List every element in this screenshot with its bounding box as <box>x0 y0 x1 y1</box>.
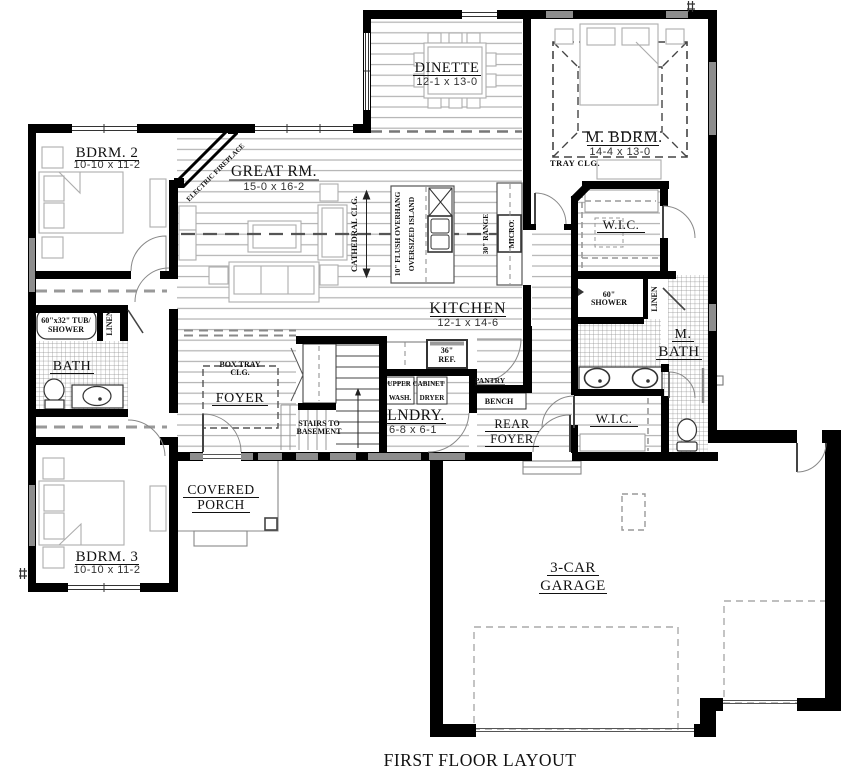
svg-text:M. BDRM.: M. BDRM. <box>585 129 662 146</box>
svg-text:LINEN: LINEN <box>650 286 659 312</box>
svg-text:14-4 x 13-0: 14-4 x 13-0 <box>589 146 650 158</box>
svg-text:10" FLUSH OVERHANG: 10" FLUSH OVERHANG <box>393 192 402 277</box>
svg-text:FIRST FLOOR LAYOUT: FIRST FLOOR LAYOUT <box>384 750 577 767</box>
svg-text:OVERSIZED ISLAND: OVERSIZED ISLAND <box>407 196 416 271</box>
svg-text:W.I.C.: W.I.C. <box>603 217 640 232</box>
svg-text:15-0 x 16-2: 15-0 x 16-2 <box>243 181 304 193</box>
svg-text:BASEMENT: BASEMENT <box>297 427 343 436</box>
svg-text:DRYER: DRYER <box>420 394 446 402</box>
svg-text:GREAT RM.: GREAT RM. <box>231 163 317 180</box>
svg-text:PORCH: PORCH <box>197 497 245 512</box>
svg-text:30" RANGE: 30" RANGE <box>481 214 490 255</box>
svg-text:10-10 x 11-2: 10-10 x 11-2 <box>74 564 141 576</box>
svg-text:TRAY CLG.: TRAY CLG. <box>550 158 600 168</box>
svg-text:DINETTE: DINETTE <box>415 60 480 76</box>
svg-text:12-1 x 13-0: 12-1 x 13-0 <box>416 76 477 88</box>
svg-text:KITCHEN: KITCHEN <box>429 300 506 317</box>
svg-text:BENCH: BENCH <box>485 397 514 406</box>
svg-text:MICRO.: MICRO. <box>507 220 516 249</box>
svg-text:COVERED: COVERED <box>187 482 254 497</box>
svg-text:M.: M. <box>675 327 692 342</box>
svg-text:REF.: REF. <box>438 355 455 364</box>
svg-text:W.I.C.: W.I.C. <box>596 411 633 426</box>
svg-text:SHOWER: SHOWER <box>591 298 627 307</box>
svg-text:PANTRY: PANTRY <box>475 376 506 385</box>
svg-text:WASH.: WASH. <box>389 394 412 402</box>
svg-text:6-8 x 6-1: 6-8 x 6-1 <box>389 424 437 436</box>
svg-text:FOYER: FOYER <box>490 432 534 446</box>
svg-text:CATHEDRAL CLG.: CATHEDRAL CLG. <box>349 196 359 272</box>
svg-text:BATH: BATH <box>53 359 92 374</box>
svg-text:60"x32" TUB/: 60"x32" TUB/ <box>41 316 91 325</box>
svg-text:REAR: REAR <box>494 417 530 431</box>
svg-text:GARAGE: GARAGE <box>540 578 606 594</box>
svg-text:BDRM. 3: BDRM. 3 <box>76 549 139 565</box>
svg-text:BATH: BATH <box>658 344 699 360</box>
svg-text:LNDRY.: LNDRY. <box>387 407 444 424</box>
svg-text:12-1 x 14-6: 12-1 x 14-6 <box>437 317 498 329</box>
svg-text:CLG.: CLG. <box>230 368 249 377</box>
svg-text:10-10 x 11-2: 10-10 x 11-2 <box>74 159 141 171</box>
svg-text:36": 36" <box>441 346 453 355</box>
svg-text:SHOWER: SHOWER <box>48 325 84 334</box>
svg-text:FOYER: FOYER <box>216 391 265 406</box>
svg-text:3-CAR: 3-CAR <box>550 560 596 576</box>
svg-text:LINEN: LINEN <box>105 310 114 336</box>
svg-text:UPPER CABINET: UPPER CABINET <box>388 380 445 388</box>
